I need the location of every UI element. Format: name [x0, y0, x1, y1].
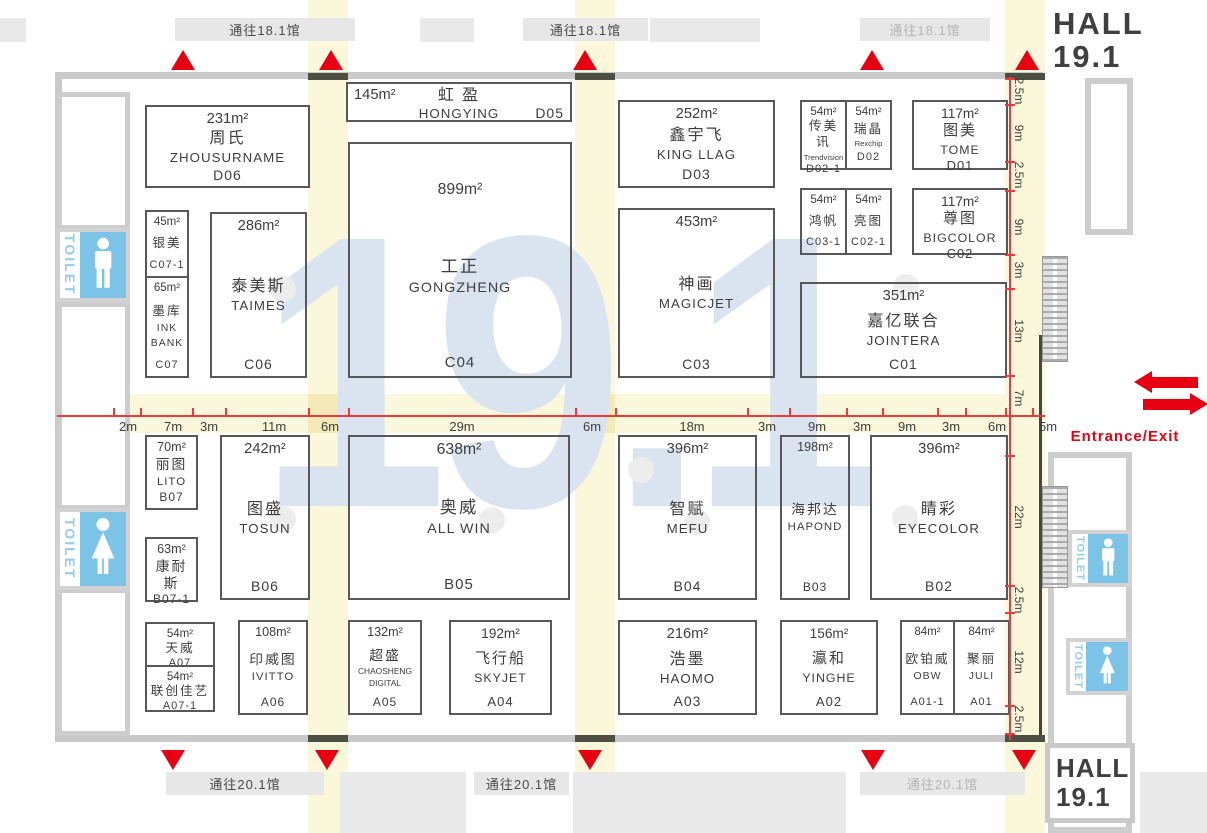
dimension-label: 7m — [1012, 390, 1026, 407]
dimension-tick — [575, 408, 577, 417]
booth-area: 65m² — [154, 281, 180, 295]
dimension-label: 9m — [1012, 125, 1026, 142]
booth-C04[interactable]: 899m²工正GONGZHENGC04 — [348, 142, 572, 378]
booth-area: 156m² — [810, 625, 849, 642]
passage-label-to-hall-18-1: 通往18.1馆 — [523, 18, 648, 41]
booth-area: 638m² — [437, 440, 482, 460]
adjacent-structure — [340, 772, 466, 833]
booth-D02[interactable]: 54m²瑞晶RexchipD02 — [845, 100, 892, 170]
dimension-tick — [1005, 585, 1015, 587]
booth-area: 45m² — [154, 215, 180, 229]
booth-area: 108m² — [255, 625, 291, 641]
dimension-label: 9m — [808, 419, 826, 434]
booth-area: 54m² — [810, 105, 836, 119]
booth-name-en: SKYJET — [474, 671, 527, 686]
booth-name-en: HONGYING — [410, 106, 508, 123]
booth-area: 132m² — [367, 625, 403, 641]
passage-label-text: 通往18.1馆 — [889, 20, 960, 39]
dimension-tick — [348, 408, 350, 417]
passage-arrow-up-icon — [860, 50, 884, 70]
passage-label-to-hall-20-1: 通往20.1馆 — [860, 772, 1025, 795]
booth-area: 351m² — [883, 287, 925, 305]
dimension-tick — [1005, 161, 1015, 163]
booth-name-cn: 康耐斯 — [148, 558, 195, 592]
door-opening — [575, 735, 615, 742]
booth-name-en: TOME — [940, 143, 979, 158]
booth-name-cn: 嘉亿联合 — [867, 311, 939, 331]
booth-code: A02 — [816, 694, 842, 710]
dimension-line-vertical — [1009, 77, 1011, 740]
booth-name-cn: 海邦达 — [791, 501, 838, 518]
hall-title-top: HALL19.1 — [1053, 8, 1144, 73]
booth-C07[interactable]: 65m²墨库INKBANKC07 — [145, 276, 189, 378]
dimension-tick — [846, 408, 848, 417]
booth-name-cn: 奥威 — [440, 497, 479, 519]
passage-arrow-up-icon — [573, 50, 597, 70]
booth-B02[interactable]: 396m²睛彩EYECOLORB02 — [870, 435, 1008, 600]
arrow-right-icon — [1190, 393, 1207, 415]
adjacent-structure — [0, 18, 26, 42]
booth-name-cn: 尊图 — [943, 210, 977, 229]
booth-name-en: OBW — [914, 670, 942, 683]
booth-code: D01 — [947, 158, 974, 174]
dimension-label: 6m — [583, 419, 601, 434]
booth-code: B02 — [925, 578, 953, 596]
booth-name-cn: 瀛和 — [812, 650, 846, 669]
booth-code: A03 — [674, 693, 702, 711]
booth-name-cn: 周氏 — [209, 128, 245, 148]
booth-name-cn: 神画 — [678, 274, 714, 294]
booth-name-cn: 鸿帆 — [809, 214, 838, 230]
booth-B07[interactable]: 70m²丽图LITOB07 — [145, 435, 198, 510]
booth-D03[interactable]: 252m²鑫宇飞KING LLAGD03 — [618, 100, 775, 188]
booth-name-cn: 工正 — [441, 256, 480, 278]
booth-name-en: BANK — [151, 337, 183, 350]
service-room — [57, 92, 130, 230]
booth-code: C03-1 — [806, 236, 841, 250]
booth-name-cn: 飞行船 — [475, 650, 526, 669]
female-toilet-icon — [80, 512, 126, 586]
booth-code: A04 — [487, 694, 513, 710]
floorplan-hall-19-1: 19.1 HALL19.1 HALL19.1 Entrance/Exit 通往1… — [0, 0, 1207, 833]
passage-label-text: 通往20.1馆 — [907, 774, 978, 793]
dimension-tick — [937, 408, 939, 417]
booth-B07-1[interactable]: 63m²康耐斯B07-1 — [145, 537, 198, 602]
booth-name-en: MEFU — [667, 521, 709, 538]
toilet-label: TOILET — [1070, 642, 1086, 691]
booth-area: 396m² — [918, 440, 960, 458]
adjacent-structure — [420, 18, 474, 42]
passage-arrow-up-icon — [1015, 50, 1039, 70]
passage-arrow-down-icon — [578, 750, 602, 770]
passage-arrow-down-icon — [861, 750, 885, 770]
booth-code: A06 — [261, 695, 285, 710]
toilet-label: TOILET — [60, 232, 80, 298]
passage-label-text: 通往20.1馆 — [209, 774, 280, 793]
entrance-exit-label: Entrance/Exit — [1043, 428, 1207, 445]
booth-name-cn: 图美 — [943, 122, 977, 141]
booth-code: A01 — [970, 696, 993, 710]
arrow-left-icon — [1152, 377, 1198, 388]
booth-area: 899m² — [438, 180, 483, 200]
booth-name-en: MAGICJET — [659, 296, 734, 313]
dimension-line-horizontal — [57, 415, 1045, 417]
passage-arrow-down-icon — [1012, 750, 1036, 770]
booth-name-en: IVITTO — [252, 670, 295, 684]
booth-name-en: LITO — [157, 475, 186, 489]
booth-C01[interactable]: 351m²嘉亿联合JOINTERAC01 — [800, 282, 1007, 378]
booth-code: D03 — [682, 166, 711, 184]
booth-area: 198m² — [797, 440, 833, 456]
booth-area: 242m² — [244, 440, 286, 458]
booth-code: A05 — [373, 695, 397, 710]
booth-name-cn: 睛彩 — [921, 499, 957, 519]
dimension-tick — [1005, 254, 1015, 256]
door-opening — [575, 73, 615, 80]
dimension-label: 7m — [164, 419, 182, 434]
booth-code: B03 — [803, 580, 827, 595]
booth-name-cn: 亮图 — [854, 214, 883, 230]
booth-name-sub: Rexchip — [855, 139, 883, 149]
adjacent-structure — [650, 18, 760, 42]
passage-label-text: 通往18.1馆 — [550, 20, 621, 39]
door-opening — [308, 73, 348, 80]
passage-label-to-hall-18-1: 通往18.1馆 — [860, 18, 990, 41]
escalator-icon — [1042, 256, 1068, 362]
male-toilet: TOILET — [1068, 530, 1132, 587]
booth-area: 117m² — [941, 105, 979, 122]
booth-A07[interactable]: 54m²天威A07 — [145, 622, 215, 667]
passage-label-to-hall-20-1: 通往20.1馆 — [474, 772, 569, 795]
booth-D06[interactable]: 231m²周氏ZHOUSURNAMED06 — [145, 105, 310, 188]
booth-name-cn: 天威 — [165, 641, 194, 657]
adjacent-structure — [573, 772, 846, 833]
door-opening — [1005, 735, 1045, 742]
booth-code: B07 — [159, 490, 183, 505]
dimension-tick — [747, 408, 749, 417]
dimension-label: 2.5m — [1012, 706, 1026, 733]
booth-name-cn: 联创佳艺 — [151, 684, 210, 700]
booth-C03-1[interactable]: 54m²鸿帆C03-1 — [800, 188, 847, 255]
passage-label-to-hall-20-1: 通往20.1馆 — [166, 772, 324, 795]
booth-name-cn: 墨库 — [152, 304, 181, 320]
toilet-label: TOILET — [1072, 534, 1088, 583]
dimension-label: 12m — [1012, 650, 1026, 673]
booth-code: C04 — [445, 354, 476, 373]
arrow-right-icon — [1143, 399, 1190, 410]
booth-area: 70m² — [157, 440, 186, 456]
male-toilet-icon — [80, 232, 126, 298]
booth-A07-1[interactable]: 54m²联创佳艺A07-1 — [145, 665, 215, 712]
escalator-icon — [1042, 486, 1068, 588]
dimension-label: 3m — [942, 419, 960, 434]
booth-name-en: BIGCOLOR — [923, 231, 996, 246]
booth-code: C01 — [889, 356, 918, 374]
dimension-tick — [225, 408, 227, 417]
dimension-label: 9m — [1012, 219, 1026, 236]
booth-C02-1[interactable]: 54m²亮图C02-1 — [845, 188, 892, 255]
booth-name-cn: 瑞晶 — [854, 122, 883, 138]
wall-top — [55, 72, 1043, 79]
booth-area: 145m² — [354, 86, 416, 104]
booth-area: 192m² — [481, 625, 520, 642]
passage-arrow-up-icon — [319, 50, 343, 70]
booth-code: C02 — [947, 246, 974, 262]
booth-area: 216m² — [667, 625, 709, 643]
female-toilet: TOILET — [56, 508, 130, 590]
booth-name-en: YINGHE — [802, 671, 855, 686]
female-toilet: TOILET — [1066, 638, 1132, 695]
male-toilet: TOILET — [56, 228, 130, 302]
booth-C07-1[interactable]: 45m²银美C07-1 — [145, 210, 189, 278]
booth-name-en: INK — [157, 322, 177, 335]
dimension-label: 6m — [321, 419, 339, 434]
dimension-label: 3m — [853, 419, 871, 434]
booth-A01[interactable]: 84m²聚丽JULIA01 — [953, 620, 1010, 715]
booth-code: D02-1 — [806, 163, 841, 177]
booth-name-cn: 图盛 — [247, 499, 283, 519]
passage-arrow-down-icon — [161, 750, 185, 770]
booth-C06[interactable]: 286m²泰美斯TAIMESC06 — [210, 212, 307, 378]
booth-area: 54m² — [167, 627, 193, 641]
dimension-label: 11m — [262, 419, 286, 434]
booth-code: C06 — [244, 356, 273, 374]
booth-name-cn: 浩墨 — [669, 649, 705, 669]
booth-area: 231m² — [207, 110, 249, 128]
booth-A03[interactable]: 216m²浩墨HAOMOA03 — [618, 620, 757, 715]
booth-area: 286m² — [238, 217, 280, 235]
door-opening — [308, 735, 348, 742]
booth-name-sub: Trendvision — [804, 153, 843, 163]
booth-code: C07-1 — [150, 259, 185, 273]
passage-label-to-hall-18-1: 通往18.1馆 — [175, 18, 355, 41]
service-room — [57, 302, 130, 510]
booth-area: 84m² — [968, 625, 994, 639]
booth-code: D05 — [508, 105, 564, 123]
booth-name-cn: 丽图 — [156, 456, 188, 473]
booth-A05[interactable]: 132m²超盛CHAOSHENGDIGITALA05 — [348, 620, 422, 715]
booth-name-en: TOSUN — [239, 521, 290, 538]
dimension-tick — [882, 408, 884, 417]
booth-B04[interactable]: 396m²智赋MEFUB04 — [618, 435, 757, 600]
toilet-label: TOILET — [60, 512, 80, 586]
booth-name-en: ALL WIN — [427, 521, 491, 539]
booth-area: 54m² — [167, 670, 193, 684]
dimension-label: 13m — [1012, 319, 1026, 342]
dimension-tick — [1005, 408, 1007, 417]
dimension-tick — [1005, 78, 1015, 80]
hall-title-bottom: HALL19.1 — [1045, 743, 1135, 823]
booth-name-cn: 泰美斯 — [231, 276, 285, 296]
dimension-tick — [113, 408, 115, 417]
booth-name-en: EYECOLOR — [898, 521, 980, 538]
dimension-tick — [1005, 288, 1015, 290]
booth-name-cn: 聚丽 — [967, 652, 996, 668]
adjacent-structure — [1140, 772, 1207, 833]
booth-code: B07-1 — [153, 592, 190, 607]
male-toilet-icon — [1088, 534, 1128, 583]
dimension-tick — [1005, 612, 1015, 614]
booth-name-sub: CHAOSHENG — [358, 666, 412, 677]
booth-B03[interactable]: 198m²海邦达HAPONDB03 — [780, 435, 850, 600]
booth-code: A07-1 — [163, 700, 197, 714]
passage-arrow-up-icon — [171, 50, 195, 70]
booth-name-sub: DIGITAL — [369, 678, 401, 689]
dimension-label: 3m — [1012, 262, 1026, 279]
booth-A06[interactable]: 108m²印威图IVITTOA06 — [238, 620, 308, 715]
booth-name-en: KING LLAG — [657, 147, 736, 164]
booth-area: 54m² — [810, 193, 836, 207]
corridor-top-right — [1085, 78, 1133, 235]
booth-name-en: TAIMES — [231, 298, 286, 315]
booth-area: 63m² — [157, 542, 186, 558]
booth-code: C03 — [682, 356, 711, 374]
booth-name-en: GONGZHENG — [409, 280, 511, 298]
booth-area: 84m² — [914, 625, 940, 639]
dimension-label: 2m — [119, 419, 137, 434]
dimension-tick — [140, 408, 142, 417]
dimension-tick — [1005, 733, 1015, 735]
booth-name-cn: 鑫宇飞 — [669, 125, 723, 145]
booth-D05[interactable]: 145m²虹盈HONGYINGD05 — [346, 82, 572, 122]
booth-code: C07 — [155, 359, 178, 373]
dimension-label: 22m — [1012, 505, 1026, 528]
booth-area: 396m² — [667, 440, 709, 458]
booth-A04[interactable]: 192m²飞行船SKYJETA04 — [449, 620, 552, 715]
booth-code: B06 — [251, 578, 279, 596]
booth-name-cn: 传美讯 — [803, 119, 844, 151]
booth-area: 117m² — [941, 193, 979, 210]
booth-A01-1[interactable]: 84m²欧铂威OBWA01-1 — [900, 620, 955, 715]
dimension-tick — [192, 408, 194, 417]
booth-C03[interactable]: 453m²神画MAGICJETC03 — [618, 208, 775, 378]
dimension-tick — [308, 408, 310, 417]
booth-area: 453m² — [676, 213, 718, 231]
dimension-tick — [615, 408, 617, 417]
booth-area: 54m² — [855, 193, 881, 207]
booth-B05[interactable]: 638m²奥威ALL WINB05 — [348, 435, 570, 600]
dimension-label: 3m — [200, 419, 218, 434]
dimension-label: 18m — [679, 419, 704, 434]
passage-arrow-down-icon — [315, 750, 339, 770]
dimension-label: 2.5m — [1012, 162, 1026, 189]
dimension-tick — [1005, 104, 1015, 106]
booth-D01[interactable]: 117m²图美TOMED01 — [912, 100, 1008, 170]
dimension-label: 2.5m — [1012, 587, 1026, 614]
dimension-label: 9m — [898, 419, 916, 434]
arrow-left-icon — [1134, 371, 1152, 393]
female-toilet-icon — [1086, 642, 1128, 691]
dimension-label: 3m — [758, 419, 776, 434]
dimension-tick — [1032, 408, 1034, 417]
dimension-tick — [1005, 190, 1015, 192]
dimension-tick — [789, 408, 791, 417]
service-room — [57, 588, 130, 736]
dimension-label: 6m — [988, 419, 1006, 434]
booth-code: B04 — [674, 578, 702, 596]
dimension-label: 5m — [1039, 419, 1057, 434]
booth-name-en: JOINTERA — [867, 333, 941, 350]
booth-code: D06 — [213, 167, 242, 185]
booth-B06[interactable]: 242m²图盛TOSUNB06 — [220, 435, 310, 600]
booth-name-cn: 智赋 — [669, 499, 705, 519]
booth-name-en: ZHOUSURNAME — [170, 150, 285, 167]
booth-name-cn: 虹盈 — [416, 85, 508, 105]
dimension-label: 29m — [449, 419, 474, 434]
wall-bottom — [55, 735, 1043, 742]
booth-name-cn: 超盛 — [369, 647, 401, 664]
dimension-tick — [1005, 705, 1015, 707]
booth-name-cn: 印威图 — [249, 651, 296, 668]
booth-name-en: HAOMO — [660, 671, 715, 688]
booth-name-cn: 银美 — [152, 236, 181, 252]
passage-label-text: 通往20.1馆 — [486, 774, 557, 793]
booth-code: C02-1 — [851, 236, 886, 250]
booth-D02-1[interactable]: 54m²传美讯TrendvisionD02-1 — [800, 100, 847, 170]
booth-area: 54m² — [855, 105, 881, 119]
booth-name-en: JULI — [969, 670, 994, 683]
booth-C02[interactable]: 117m²尊图BIGCOLORC02 — [912, 188, 1008, 255]
booth-A02[interactable]: 156m²瀛和YINGHEA02 — [780, 620, 878, 715]
dimension-tick — [1005, 455, 1015, 457]
booth-area: 252m² — [676, 105, 718, 123]
dimension-tick — [1005, 375, 1015, 377]
booth-code: A01-1 — [910, 696, 944, 710]
booth-name-cn: 欧铂威 — [906, 652, 950, 668]
booth-name-en: HAPOND — [788, 520, 843, 534]
passage-label-text: 通往18.1馆 — [229, 20, 300, 39]
booth-code: B05 — [444, 576, 474, 595]
dimension-tick — [965, 408, 967, 417]
dimension-label: 2.5m — [1012, 78, 1026, 105]
booth-code: D02 — [857, 151, 880, 165]
